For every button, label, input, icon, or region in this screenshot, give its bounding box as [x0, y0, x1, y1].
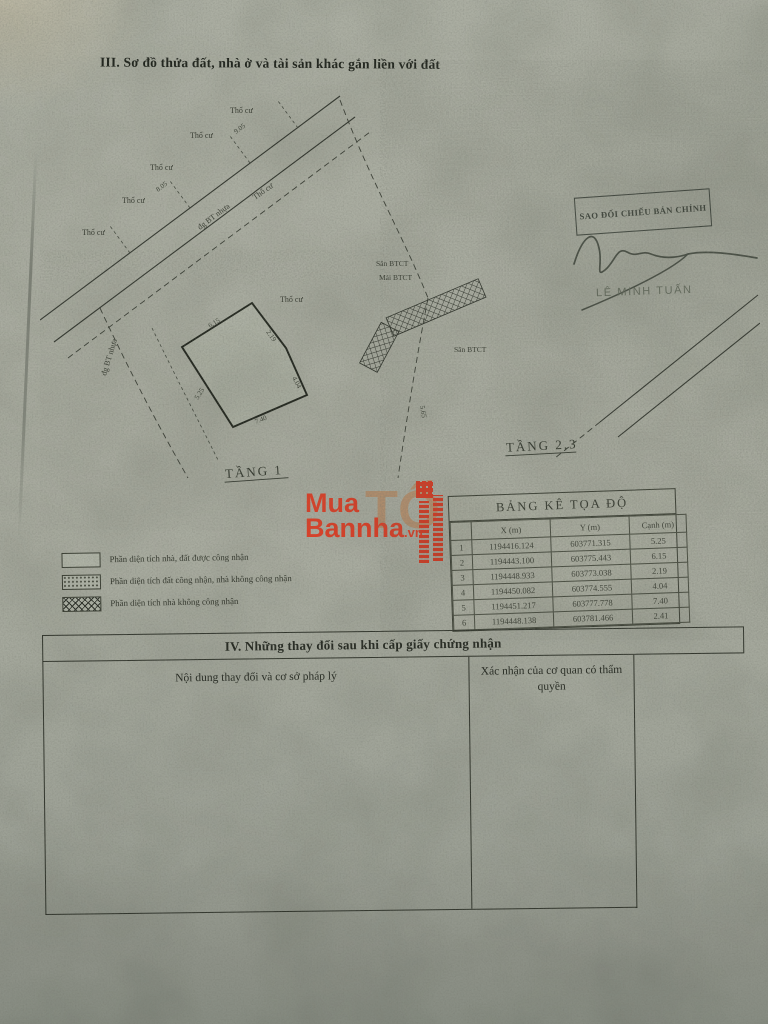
road-line: [618, 323, 760, 437]
structure-label: Sân BTCT: [376, 259, 409, 268]
land-use-label: Thổ cư: [82, 228, 105, 237]
lot-boundary: [230, 136, 250, 163]
floor23-caption: TẦNG 2,3: [505, 436, 578, 456]
cell-no: 3: [452, 570, 474, 586]
scanned-land-certificate-page: III. Sơ đồ thửa đất, nhà ở và tài sản kh…: [0, 0, 768, 1024]
road-name-label: đg BT nhựa: [196, 201, 232, 231]
legend-item: Phần diện tích nhà không công nhận: [62, 593, 292, 611]
parcel-boundary: [100, 308, 188, 478]
coordinate-table: BẢNG KÊ TỌA ĐỘ X (m) Y (m) Cạnh (m) 1 11…: [448, 488, 681, 632]
dimension-label: 8.05: [154, 180, 169, 194]
section4-col2-header: Xác nhận của cơ quan có thẩm quyền: [469, 655, 636, 909]
lot-boundary: [110, 226, 130, 253]
hatched-band: [386, 279, 486, 336]
section4-title: IV. Những thay đổi sau khi cấp giấy chứn…: [43, 633, 683, 657]
col-header-edge: Cạnh (m): [629, 514, 687, 534]
watermark-seal-grid: [416, 481, 433, 498]
cell-no: 5: [453, 600, 475, 616]
section4-col1-header: Nội dung thay đổi và cơ sở pháp lý: [43, 657, 472, 914]
legend-item: Phần diện tích nhà, đất được công nhận: [61, 549, 291, 567]
section4-table: Nội dung thay đổi và cơ sở pháp lý Xác n…: [42, 655, 637, 915]
edge-length-label: 5.25: [193, 386, 207, 401]
legend: Phần diện tích nhà, đất được công nhận P…: [61, 549, 292, 619]
signature: [552, 216, 767, 316]
land-use-label: Thổ cư: [150, 163, 173, 172]
hatched-band: [360, 322, 399, 372]
legend-swatch-plain: [61, 552, 100, 568]
floor1-caption: TẦNG 1: [224, 462, 289, 482]
structure-label: Sân BTCT: [454, 345, 487, 354]
cell-x: 1194448.138: [474, 612, 553, 630]
lot-boundary: [278, 101, 298, 128]
cell-no: 2: [451, 555, 473, 571]
legend-label: Phần diện tích đất công nhận, nhà không …: [110, 573, 292, 586]
cell-y: 603781.466: [553, 609, 632, 627]
lot-boundary: [170, 181, 190, 208]
cell-no: 6: [453, 615, 475, 631]
watermark-seal-bar: [419, 501, 429, 563]
watermark-brand-line2: Bannha.vn: [305, 515, 423, 542]
land-use-label: Thổ cư: [190, 131, 213, 140]
parcel-boundary: [340, 100, 428, 298]
section4-title-band: IV. Những thay đổi sau khi cấp giấy chứn…: [42, 626, 744, 662]
land-use-label: Thổ cư: [230, 106, 253, 115]
structure-label: Mái BTCT: [379, 273, 413, 282]
section4: IV. Những thay đổi sau khi cấp giấy chứn…: [42, 626, 749, 915]
svg-text:TẦNG 2,3: TẦNG 2,3: [506, 436, 578, 455]
watermark: TỐ Mua Bannha.vn: [303, 487, 468, 559]
land-use-label: Thổ cư: [251, 181, 275, 202]
legend-label: Phần diện tích nhà không công nhận: [110, 596, 238, 608]
dimension-label: 9.05: [232, 122, 247, 136]
watermark-seal-bar: [433, 495, 443, 561]
legend-item: Phần diện tích đất công nhận, nhà không …: [62, 571, 292, 589]
cell-no: 4: [452, 585, 474, 601]
subject-plot-outline: [182, 303, 307, 427]
legend-swatch-dots: [62, 574, 101, 590]
dimension-label: 5.65: [418, 405, 428, 419]
section3-title: III. Sơ đồ thửa đất, nhà ở và tài sản kh…: [100, 54, 530, 73]
road-name-label: đg BT nhựa: [99, 337, 119, 376]
land-use-label: Thổ cư: [280, 295, 303, 304]
legend-label: Phần diện tích nhà, đất được công nhận: [109, 552, 248, 564]
col-header-no: [450, 522, 472, 541]
legend-swatch-crosshatch: [62, 596, 101, 612]
land-use-label: Thổ cư: [122, 196, 145, 205]
cell-no: 1: [451, 540, 473, 556]
paper-edge-shadow: [17, 150, 37, 540]
cell-edge: 2.41: [632, 607, 689, 624]
